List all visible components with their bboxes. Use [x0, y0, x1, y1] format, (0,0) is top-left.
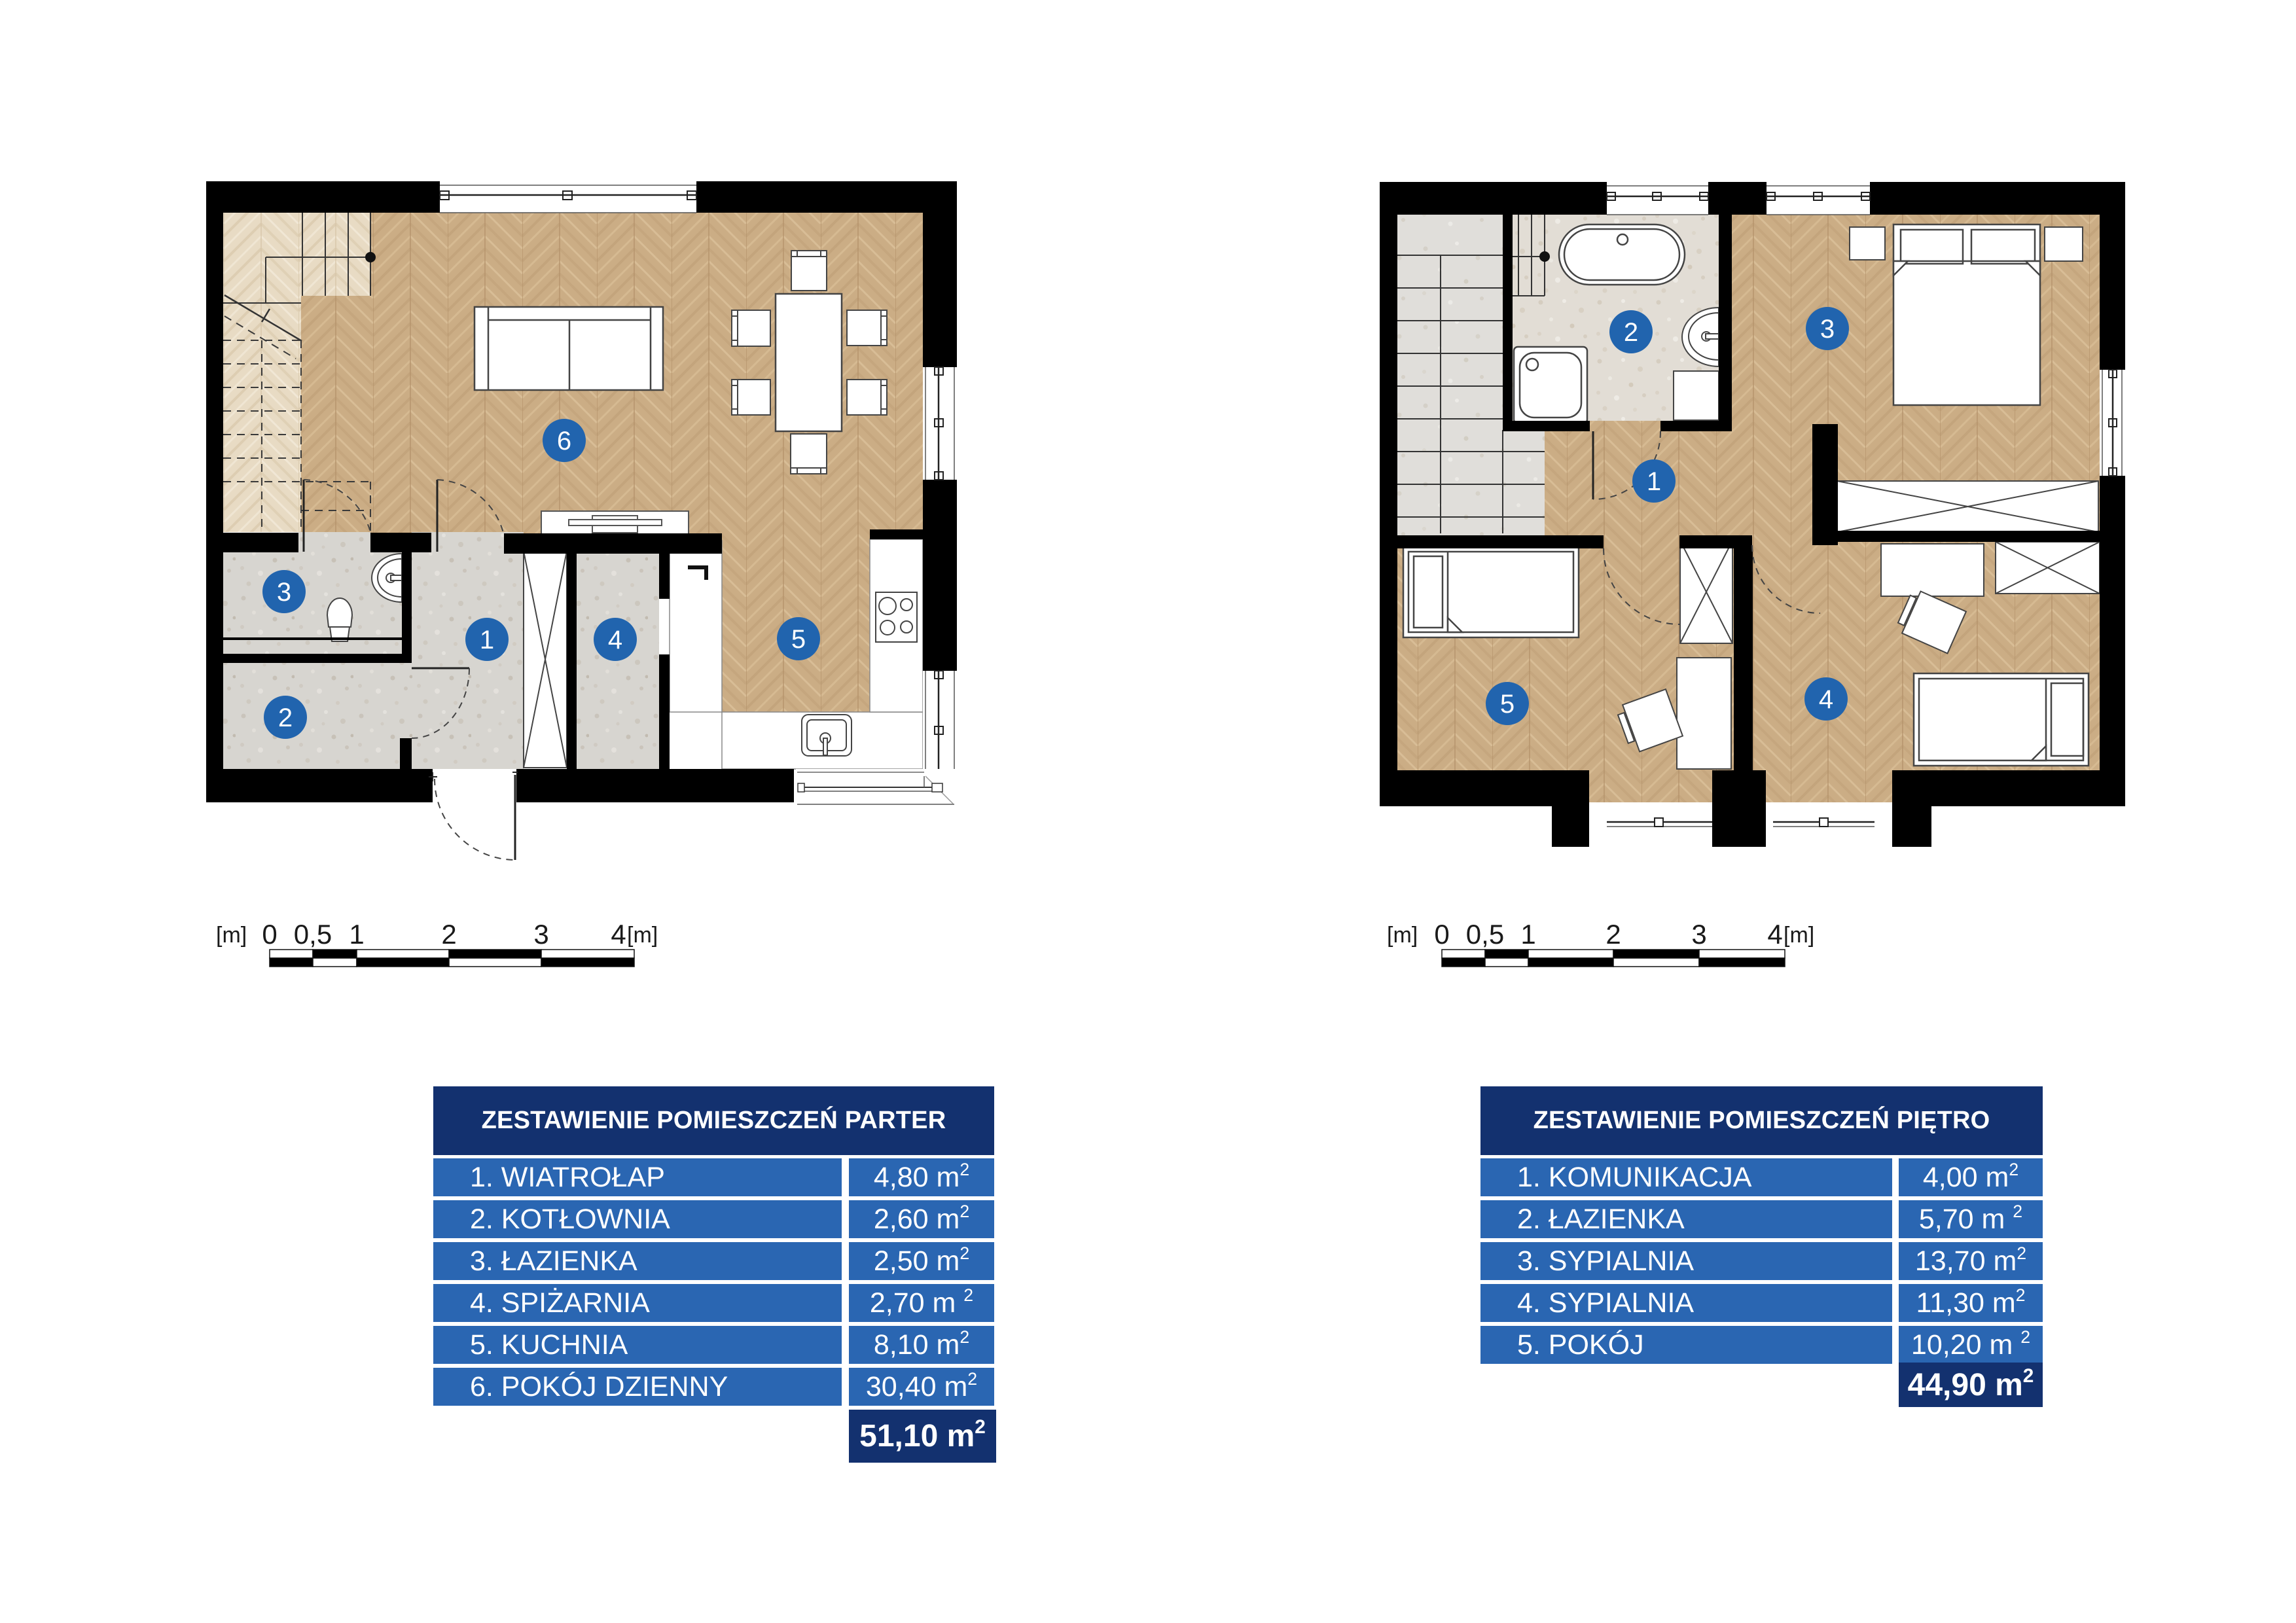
svg-text:3: 3	[277, 578, 291, 607]
svg-text:[m]: [m]	[1784, 923, 1814, 948]
svg-text:6: 6	[557, 427, 571, 455]
svg-text:1: 1	[1520, 919, 1535, 950]
svg-text:[m]: [m]	[1387, 923, 1418, 948]
svg-text:[m]: [m]	[627, 923, 658, 948]
svg-text:3: 3	[533, 919, 548, 950]
svg-text:0,5: 0,5	[1466, 919, 1504, 950]
svg-text:5: 5	[791, 625, 806, 654]
svg-text:2: 2	[278, 704, 293, 732]
svg-text:4: 4	[1819, 685, 1833, 714]
svg-text:4: 4	[611, 919, 626, 950]
svg-text:0: 0	[262, 919, 277, 950]
svg-text:0: 0	[1434, 919, 1449, 950]
svg-text:2: 2	[441, 919, 456, 950]
svg-text:3: 3	[1820, 315, 1835, 344]
svg-text:1: 1	[349, 919, 364, 950]
svg-text:0,5: 0,5	[294, 919, 332, 950]
svg-text:2: 2	[1624, 318, 1638, 347]
svg-text:[m]: [m]	[216, 923, 247, 948]
svg-text:1: 1	[1647, 467, 1661, 496]
svg-text:2: 2	[1605, 919, 1621, 950]
svg-text:3: 3	[1691, 919, 1706, 950]
svg-text:4: 4	[608, 626, 622, 654]
svg-text:1: 1	[480, 626, 494, 654]
svg-text:4: 4	[1767, 919, 1782, 950]
svg-text:5: 5	[1500, 690, 1515, 719]
